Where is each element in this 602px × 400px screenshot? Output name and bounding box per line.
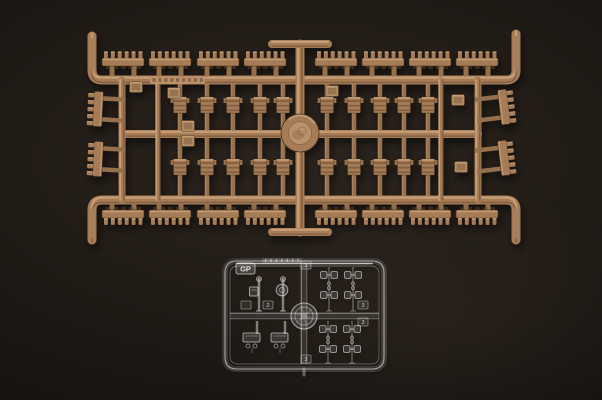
track-link-cluster — [362, 204, 404, 225]
track-link-cluster — [362, 51, 404, 76]
track-link-cluster — [149, 51, 191, 76]
pin-part-column — [198, 138, 217, 196]
tan-sprue — [87, 32, 517, 243]
track-link-cluster — [456, 51, 498, 76]
clear-periscope-part — [243, 321, 260, 353]
gp-tag: GP — [236, 263, 255, 274]
clear-tag-label: 3 — [304, 263, 307, 269]
pin-part-column — [395, 138, 414, 196]
pin-part-column — [345, 85, 364, 131]
pin-part-column — [395, 85, 414, 131]
track-link-cluster — [315, 51, 357, 76]
clear-sprue: GP32333 — [225, 258, 384, 375]
part-number-tag — [130, 82, 143, 93]
clear-part-number-tag: 3 — [358, 301, 368, 309]
pin-part-column — [371, 85, 390, 131]
pin-part-column — [224, 138, 243, 196]
clear-periscope-part — [271, 321, 288, 353]
clear-tag-label: 3 — [361, 303, 364, 309]
part-number-tag — [168, 88, 181, 99]
vertical-rail — [439, 80, 443, 200]
clear-sprue-hub — [291, 303, 317, 329]
clear-periscope-part — [276, 277, 288, 311]
sprue-photo-canvas: GP32333 — [0, 0, 602, 400]
pin-part-column — [419, 85, 438, 131]
pin-part-column — [224, 85, 243, 131]
clear-part-number-tag: 2 — [263, 301, 273, 309]
track-link-cluster — [244, 204, 286, 225]
pin-part-column — [251, 85, 270, 131]
molded-text-strip — [150, 76, 205, 84]
track-link-cluster — [456, 204, 498, 225]
clear-tag-label: 3 — [361, 320, 364, 326]
part-number-tag — [452, 95, 465, 106]
clear-part-number-tag: 3 — [358, 318, 368, 326]
clear-part-number-tag — [241, 301, 251, 309]
photo-of-model-sprues: GP32333 — [0, 0, 602, 400]
track-link-cluster — [197, 51, 239, 76]
gate-t-bar — [272, 42, 328, 46]
pin-part-column — [251, 138, 270, 196]
clear-lens-column — [320, 321, 337, 363]
track-link-cluster — [102, 204, 144, 225]
track-link-cluster — [244, 51, 286, 76]
track-link-cluster — [102, 51, 144, 76]
pin-part-column — [419, 138, 438, 196]
clear-tag-label: 3 — [304, 357, 307, 363]
clear-part-number-tag: 3 — [301, 355, 311, 363]
pin-part-column — [371, 138, 390, 196]
gp-tag-label: GP — [240, 264, 251, 273]
part-number-tag — [326, 86, 339, 97]
track-link-cluster — [149, 204, 191, 225]
track-link-cluster — [197, 204, 239, 225]
gate-t-bar — [272, 230, 328, 234]
clear-lens-column — [321, 267, 338, 311]
clear-molded-text-strip — [262, 258, 302, 263]
pin-part-column — [345, 138, 364, 196]
track-link-cluster — [315, 204, 357, 225]
part-number-tag — [455, 162, 468, 173]
clear-tag-label: 2 — [266, 303, 269, 309]
vertical-rail — [156, 80, 160, 200]
pin-part-column — [198, 85, 217, 131]
clear-part-number-tag: 3 — [301, 261, 311, 269]
track-link-cluster — [409, 204, 451, 225]
clear-lens-column — [344, 321, 361, 363]
pin-part-column — [318, 138, 337, 196]
part-number-tag — [182, 121, 195, 132]
track-link-cluster — [409, 51, 451, 76]
part-number-tag — [182, 136, 195, 147]
